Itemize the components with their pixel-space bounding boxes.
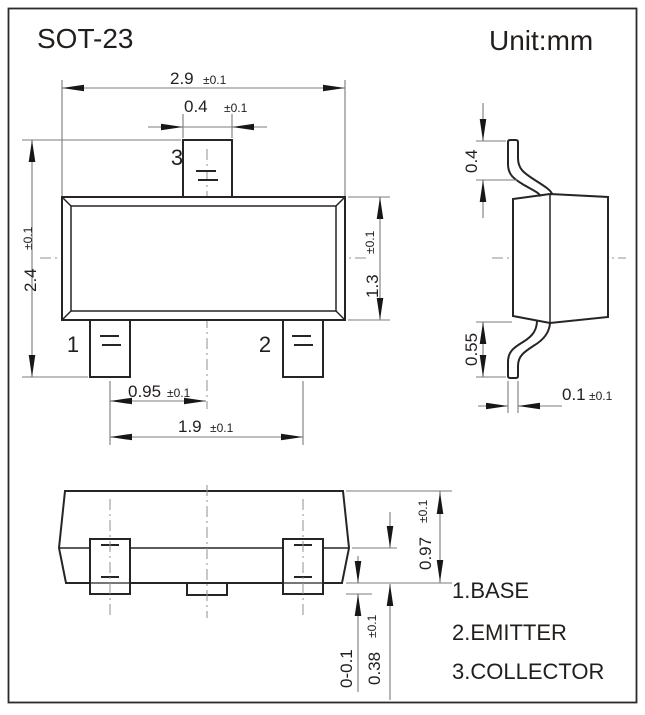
dim-tolerance: ±0.1 — [203, 73, 227, 87]
dim-value: 0.4 — [184, 97, 208, 116]
sot23-datasheet-page: SOT-23 Unit:mm 3 1 2 — [0, 0, 645, 715]
legend-base: 1.BASE — [452, 578, 529, 603]
dim-value: 0.55 — [462, 333, 481, 366]
page-title: SOT-23 — [37, 23, 133, 54]
dim-tolerance: ±0.1 — [21, 226, 35, 250]
dim-value: 0-0.1 — [337, 649, 356, 688]
unit-label: Unit:mm — [489, 25, 593, 56]
dim-tolerance: ±0.1 — [416, 499, 430, 523]
dim-tolerance: ±0.1 — [167, 386, 191, 400]
pin1-number: 1 — [67, 332, 79, 357]
top-view-body-outline — [62, 197, 345, 320]
dim-value: 1.9 — [178, 417, 202, 436]
legend-collector: 3.COLLECTOR — [452, 659, 604, 684]
dim-tolerance: ±0.1 — [224, 101, 248, 115]
dim-tolerance: ±0.1 — [365, 614, 379, 638]
pin2-number: 2 — [259, 332, 271, 357]
dim-value: 0.97 — [416, 537, 435, 570]
pin3-number: 3 — [171, 145, 183, 170]
dim-tolerance: ±0.1 — [210, 421, 234, 435]
sot23-drawing: SOT-23 Unit:mm 3 1 2 — [0, 0, 645, 715]
dim-value: 2.4 — [21, 268, 40, 292]
dim-value: 0.4 — [462, 149, 481, 173]
dim-value: 1.3 — [363, 274, 382, 298]
legend-emitter: 2.EMITTER — [452, 620, 567, 645]
dim-value: 0.1 — [562, 385, 586, 404]
side-view-body — [513, 194, 608, 323]
dim-value: 2.9 — [170, 69, 194, 88]
dim-value: 0.38 — [365, 652, 384, 685]
dim-value: 0.95 — [128, 382, 161, 401]
dim-tolerance: ±0.1 — [589, 389, 613, 403]
dim-tolerance: ±0.1 — [363, 230, 377, 254]
